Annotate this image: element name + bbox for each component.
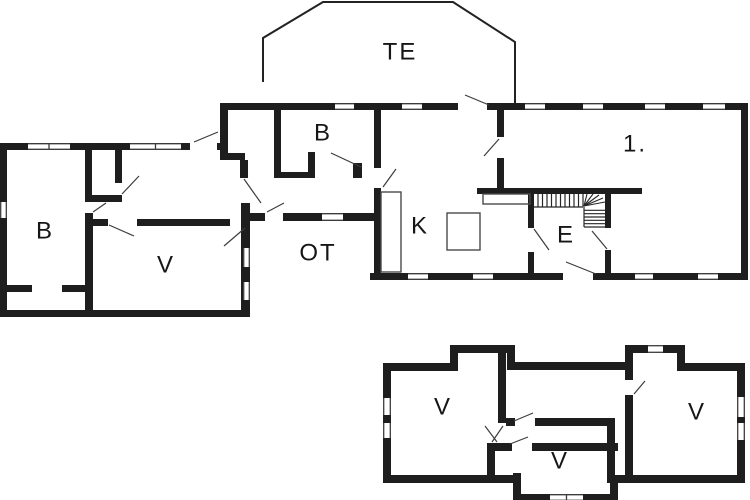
wall (220, 103, 228, 160)
room-label: V (157, 252, 175, 279)
room-label: E (557, 222, 575, 249)
wall (227, 153, 245, 160)
wall (7, 285, 32, 292)
wall (383, 363, 458, 371)
door-opening (115, 183, 122, 195)
wall (85, 195, 122, 202)
floor-plan-canvas: TEBVBOTKE1.VVV (0, 0, 750, 500)
door-opening (498, 423, 506, 443)
wall (487, 443, 495, 483)
room-label: B (314, 120, 332, 147)
door-opening (265, 213, 283, 221)
room-label: V (688, 399, 706, 426)
wall (607, 426, 615, 483)
door-opening (108, 219, 137, 226)
door-opening (605, 228, 611, 250)
wall (625, 345, 633, 483)
room-label: V (551, 448, 569, 475)
room-label: K (411, 213, 429, 240)
door-opening (190, 143, 217, 150)
door-opening (563, 273, 593, 280)
floor-plan-page: TEBVBOTKE1.VVV (0, 0, 750, 500)
door-opening (512, 443, 532, 451)
room-label: B (36, 218, 54, 245)
room-label: OT (299, 240, 336, 267)
wall (274, 109, 281, 178)
wall (308, 152, 315, 178)
wall (507, 362, 625, 370)
wall (477, 188, 642, 194)
wall (610, 475, 745, 483)
wall (115, 148, 122, 183)
wall (374, 109, 381, 280)
wall (383, 475, 521, 483)
room-label: 1. (623, 131, 647, 158)
wall (240, 160, 248, 178)
wall (741, 103, 748, 280)
wall (85, 213, 93, 310)
room-label: V (434, 394, 452, 421)
wall (0, 143, 7, 317)
door-opening (625, 380, 633, 395)
wall (85, 148, 92, 202)
wall (450, 345, 515, 353)
door-opening (458, 103, 487, 110)
room-label: TE (383, 39, 418, 66)
door-opening (240, 178, 248, 203)
wall (677, 363, 745, 371)
door-opening (374, 168, 381, 188)
wall (62, 285, 85, 292)
wall (0, 310, 250, 317)
door-opening (528, 228, 534, 252)
